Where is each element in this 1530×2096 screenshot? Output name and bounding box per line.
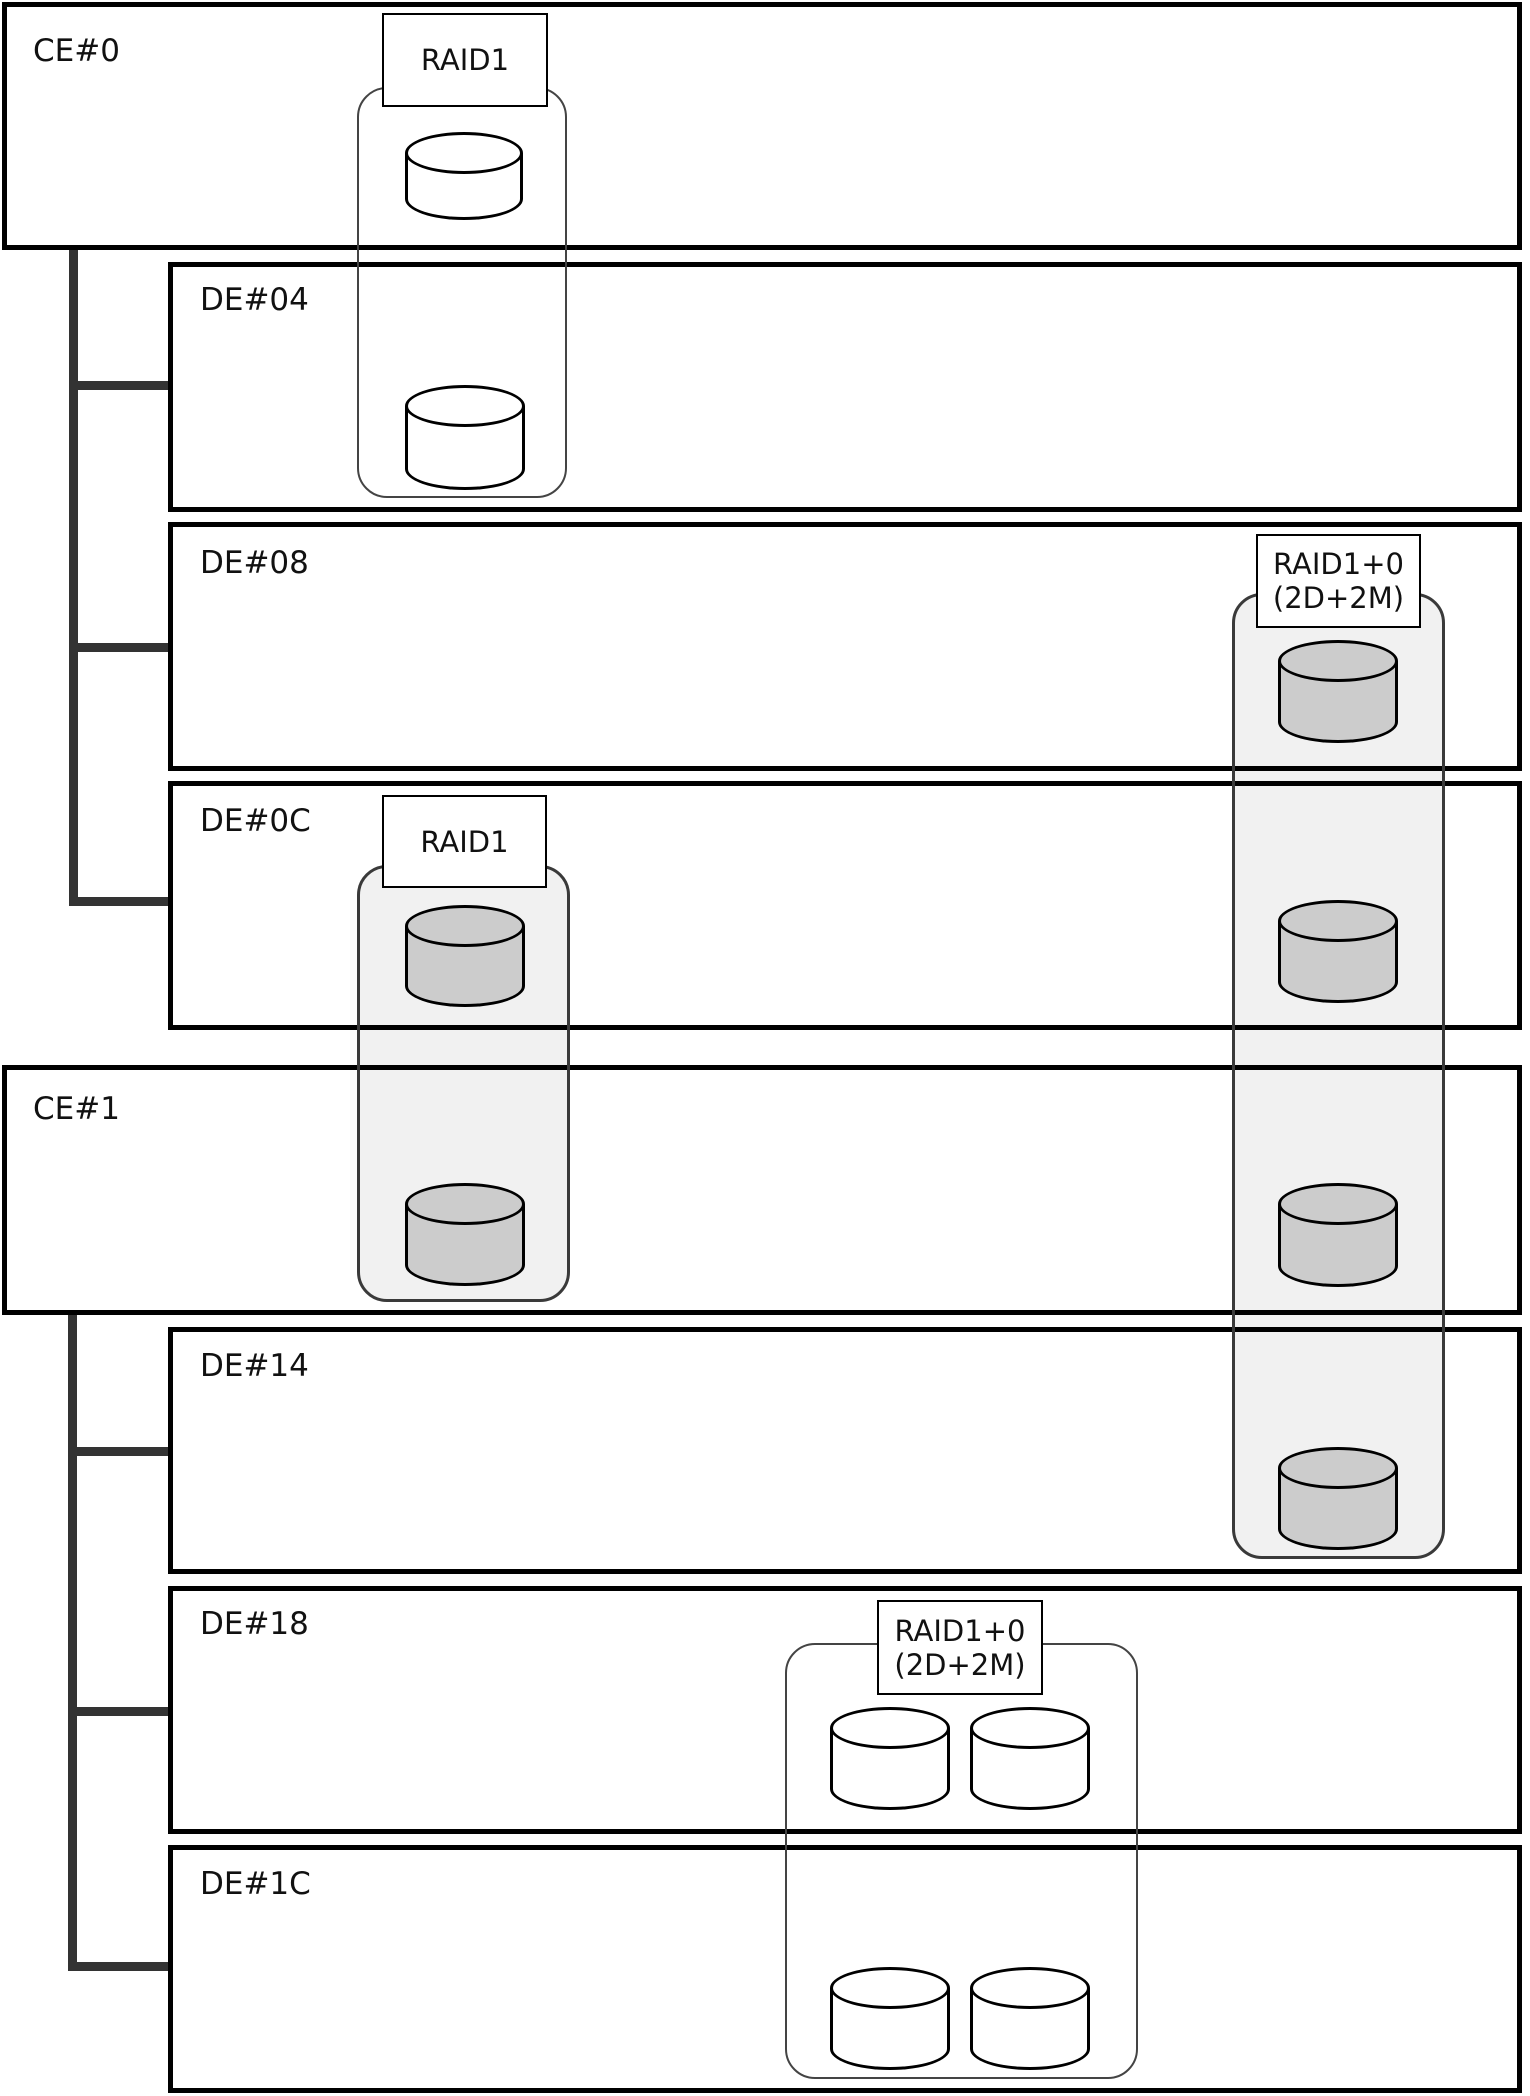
connector-trunk-ce0	[69, 250, 78, 906]
disk-cylinder-rg3-3	[1278, 1183, 1398, 1287]
raid-group-label-rg4: RAID1+0 (2D+2M)	[877, 1600, 1043, 1695]
cylinder-top	[830, 1967, 950, 2009]
disk-cylinder-rg2-2	[405, 1183, 525, 1286]
disk-cylinder-rg3-4	[1278, 1447, 1398, 1550]
connector-stub-de14	[68, 1447, 168, 1456]
cylinder-top	[830, 1707, 950, 1749]
connector-stub-de18	[68, 1707, 168, 1716]
cylinder-top	[1278, 1447, 1398, 1489]
enclosure-label-ce1: CE#1	[33, 1094, 120, 1125]
enclosure-label-de08: DE#08	[200, 548, 309, 579]
connector-stub-de08	[69, 643, 168, 652]
enclosure-label-ce0: CE#0	[33, 36, 120, 67]
cylinder-top	[970, 1967, 1090, 2009]
disk-cylinder-rg1-2	[405, 385, 525, 490]
raid-group-label-rg1: RAID1	[382, 13, 548, 107]
raid-group-label-rg3: RAID1+0 (2D+2M)	[1256, 534, 1421, 628]
disk-cylinder-rg1-1	[405, 132, 523, 220]
enclosure-label-de04: DE#04	[200, 285, 309, 316]
cylinder-top	[405, 905, 525, 947]
cylinder-top	[405, 132, 523, 174]
cylinder-top	[405, 1183, 525, 1225]
enclosure-label-de1c: DE#1C	[200, 1869, 311, 1900]
connector-stub-de1c	[68, 1962, 168, 1971]
enclosure-label-de14: DE#14	[200, 1351, 309, 1382]
disk-cylinder-rg3-1	[1278, 640, 1398, 743]
disk-cylinder-rg4-2	[970, 1707, 1090, 1810]
disk-cylinder-rg2-1	[405, 905, 525, 1007]
enclosure-label-de0c: DE#0C	[200, 806, 311, 837]
disk-cylinder-rg4-1	[830, 1707, 950, 1810]
connector-stub-de04	[69, 381, 168, 390]
connector-stub-de0c	[69, 897, 168, 906]
disk-cylinder-rg4-3	[830, 1967, 950, 2070]
storage-architecture-diagram: CE#0DE#04DE#08DE#0CCE#1DE#14DE#18DE#1CRA…	[0, 0, 1530, 2096]
cylinder-top	[405, 385, 525, 427]
cylinder-top	[1278, 900, 1398, 942]
connector-trunk-ce1	[68, 1315, 77, 1971]
cylinder-top	[970, 1707, 1090, 1749]
raid-group-label-rg2: RAID1	[382, 795, 547, 888]
cylinder-top	[1278, 1183, 1398, 1225]
disk-cylinder-rg3-2	[1278, 900, 1398, 1003]
disk-cylinder-rg4-4	[970, 1967, 1090, 2070]
enclosure-ce0	[2, 2, 1522, 250]
cylinder-top	[1278, 640, 1398, 682]
enclosure-label-de18: DE#18	[200, 1609, 309, 1640]
